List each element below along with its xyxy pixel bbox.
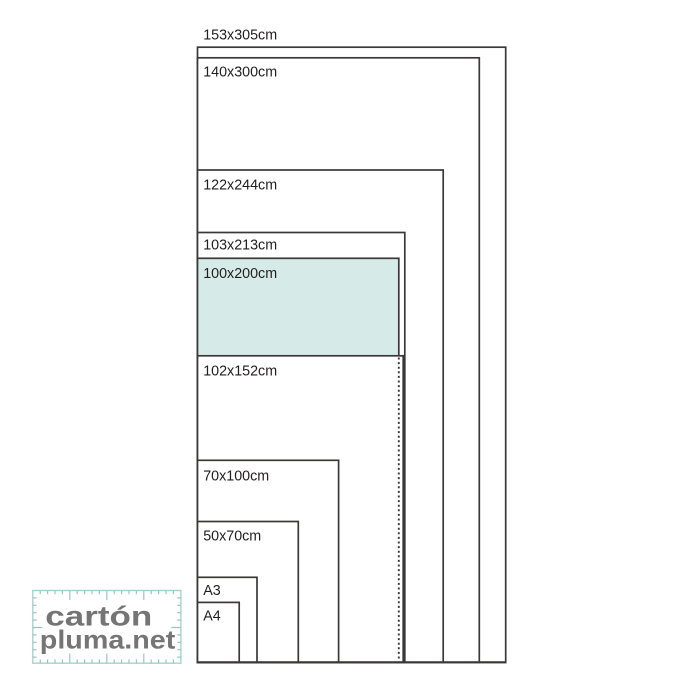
- svg-text:102x152cm: 102x152cm: [203, 364, 277, 380]
- svg-text:122x244cm: 122x244cm: [203, 178, 277, 194]
- svg-text:pluma.net: pluma.net: [40, 626, 176, 654]
- svg-text:70x100cm: 70x100cm: [203, 469, 269, 485]
- svg-text:A3: A3: [203, 583, 221, 599]
- svg-text:103x213cm: 103x213cm: [203, 238, 277, 254]
- svg-text:50x70cm: 50x70cm: [203, 529, 261, 545]
- svg-text:153x305cm: 153x305cm: [203, 28, 277, 44]
- svg-text:A4: A4: [203, 608, 221, 624]
- svg-text:100x200cm: 100x200cm: [203, 266, 277, 282]
- svg-text:140x300cm: 140x300cm: [203, 64, 277, 80]
